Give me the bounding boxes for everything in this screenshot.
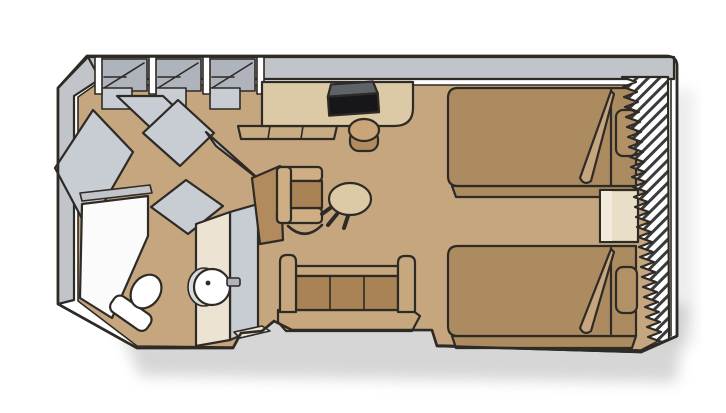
sofa-arm-left [280,255,296,312]
entry-door-icon [230,204,258,340]
twin-bed-upper [448,88,637,197]
stool-icon [349,119,379,151]
nightstand [600,190,638,242]
faucet-icon [227,278,240,286]
sofa [278,255,420,331]
floor-plan-page [0,0,726,413]
closet-divider [95,57,102,94]
pillow-icon [616,267,637,313]
tv-icon [327,81,379,115]
sofa-back [296,266,398,276]
sofa-arm-right [398,256,415,312]
twin-bed-lower [448,246,637,348]
closet-divider [149,57,156,94]
armchair-seat [291,181,322,208]
sofa-seat [296,276,398,310]
stateroom-floor-plan [0,0,726,413]
closet-divider [203,57,210,94]
sofa-base [278,310,420,331]
desk-cabinet [238,126,337,139]
